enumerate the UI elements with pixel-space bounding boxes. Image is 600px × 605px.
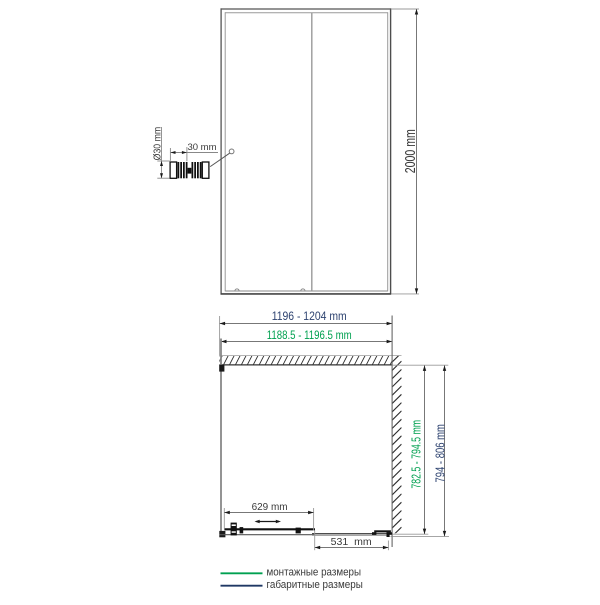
- svg-text:монтажные размеры: монтажные размеры: [267, 567, 362, 579]
- svg-text:794 - 806 mm: 794 - 806 mm: [433, 424, 448, 482]
- svg-text:531 mm: 531 mm: [331, 537, 372, 548]
- svg-text:30 mm: 30 mm: [188, 142, 217, 153]
- svg-text:2000 mm: 2000 mm: [402, 129, 419, 173]
- svg-text:габаритные размеры: габаритные размеры: [267, 579, 363, 591]
- svg-text:1196 - 1204 mm: 1196 - 1204 mm: [272, 309, 347, 323]
- svg-text:629 mm: 629 mm: [252, 502, 288, 513]
- svg-text:1188.5 - 1196.5 mm: 1188.5 - 1196.5 mm: [267, 329, 352, 342]
- svg-text:Ø30 mm: Ø30 mm: [151, 127, 163, 161]
- svg-text:782.5 - 794.5 mm: 782.5 - 794.5 mm: [409, 420, 424, 489]
